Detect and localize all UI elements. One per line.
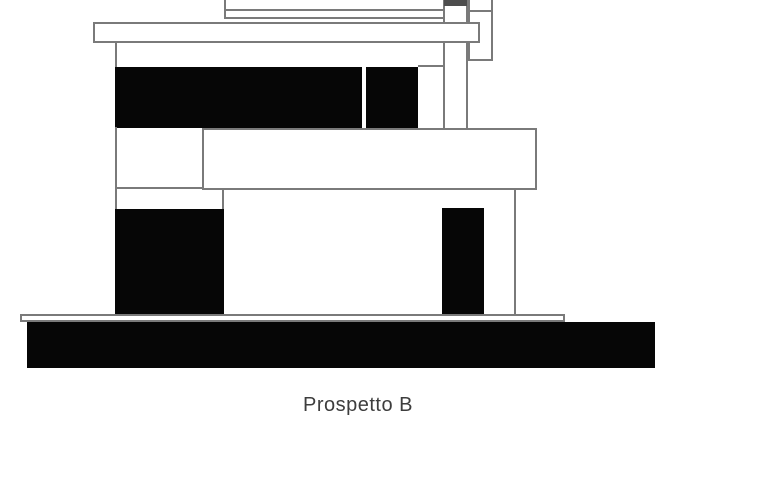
middle-left-wall-bottom-line: [115, 187, 204, 189]
upper-wall-right-top-line: [418, 65, 445, 67]
chimney-cap: [444, 0, 467, 6]
penthouse-wall-bottom-line: [224, 17, 443, 19]
ground-wall-right-edge-line: [514, 190, 516, 316]
rear-volume-top-line: [468, 10, 493, 12]
roof-slab: [93, 22, 480, 43]
penthouse-wall-mid-line: [224, 9, 443, 11]
caption: Prospetto B: [238, 394, 478, 417]
ground-floor-opening-left: [115, 209, 224, 315]
middle-floor-slab: [202, 128, 537, 190]
chimney: [443, 0, 468, 128]
upper-wall-left-edge-line: [115, 43, 117, 69]
upper-window-band-right: [366, 67, 418, 128]
ground-wall-left-edge-line: [115, 189, 117, 210]
elevation-drawing: Prospetto B: [0, 0, 780, 495]
ground-wall-strip-right-line: [222, 189, 224, 210]
ground-slab: [20, 314, 565, 322]
middle-left-wall-edge-line: [115, 127, 117, 189]
foundation-base: [27, 322, 655, 368]
ground-floor-pillar-right: [442, 208, 484, 315]
upper-window-band-left: [115, 67, 362, 128]
